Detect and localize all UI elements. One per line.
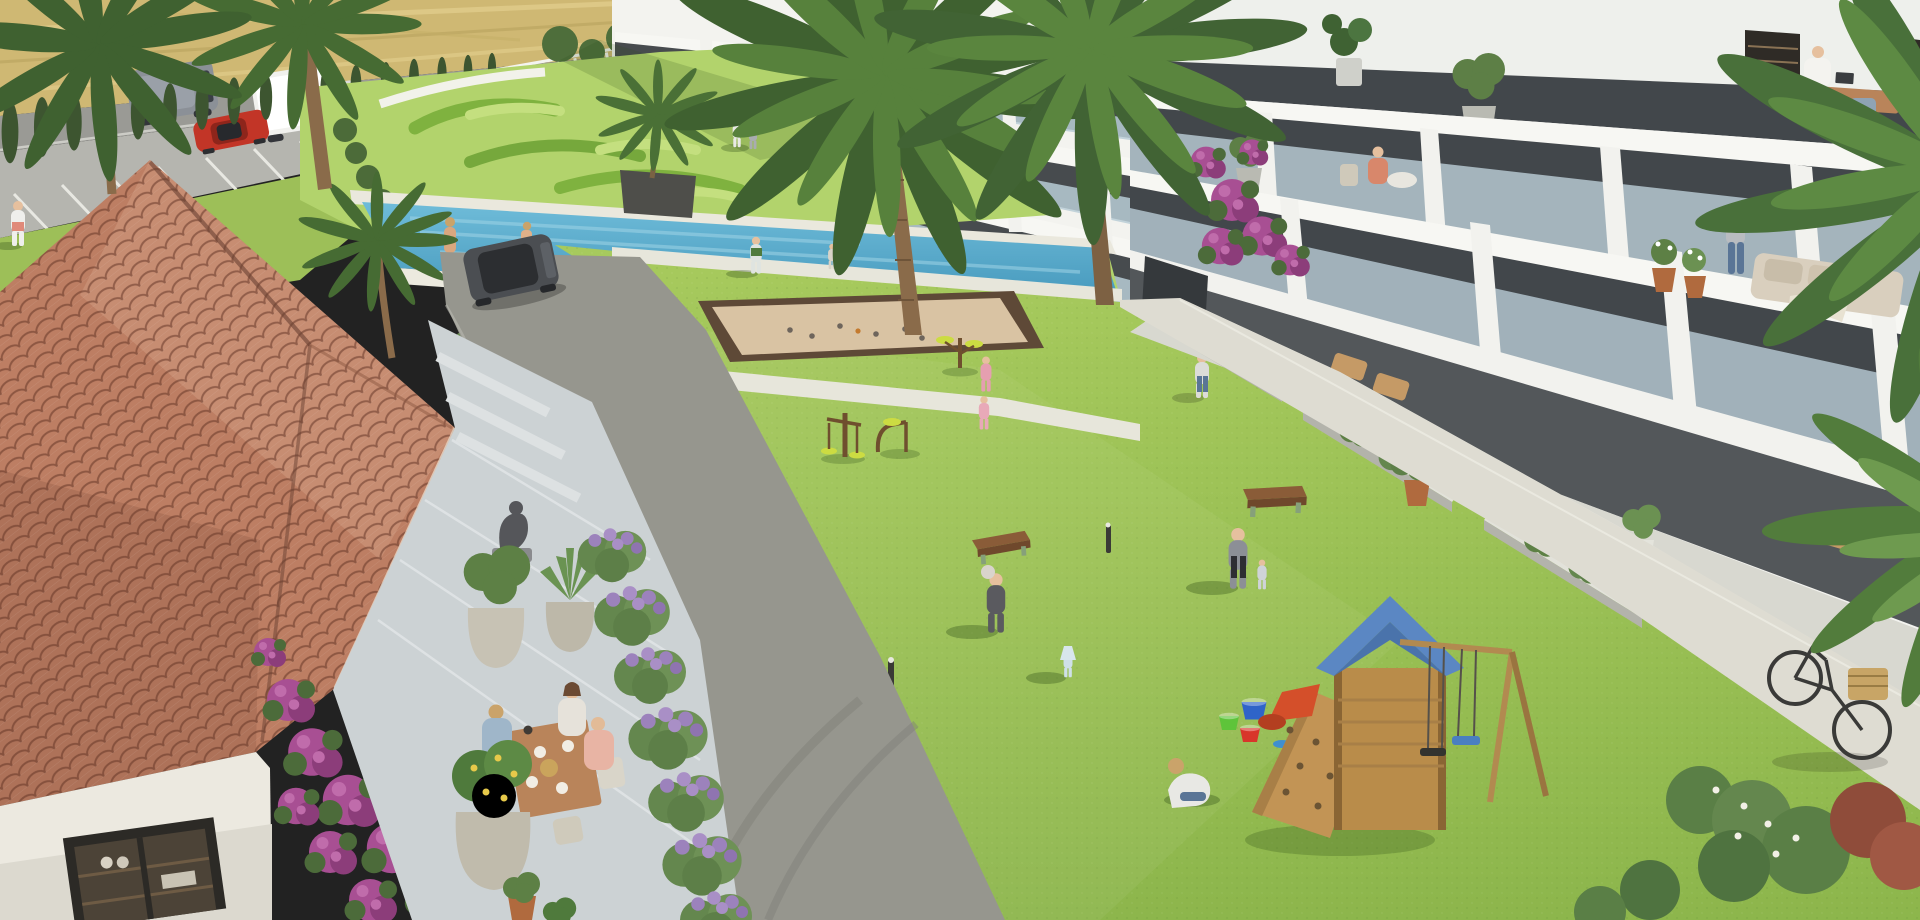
laptop — [1835, 72, 1854, 84]
swing-seat-black — [1420, 748, 1446, 756]
scene-svg — [0, 0, 1920, 920]
balcony-chair — [1340, 164, 1358, 186]
bike-basket — [1848, 668, 1888, 700]
boy-shorts — [751, 248, 762, 256]
swing-seat-blue — [1452, 736, 1480, 745]
baby — [981, 565, 995, 579]
woman-torso — [1368, 158, 1388, 184]
plate — [534, 746, 546, 758]
lemon-tree-pot — [452, 740, 532, 890]
balcony-table — [1387, 172, 1417, 188]
walker-shorts — [12, 222, 24, 231]
bread-basket — [540, 759, 558, 777]
rendering-stage — [0, 0, 1920, 920]
coffee-pot — [524, 726, 533, 735]
